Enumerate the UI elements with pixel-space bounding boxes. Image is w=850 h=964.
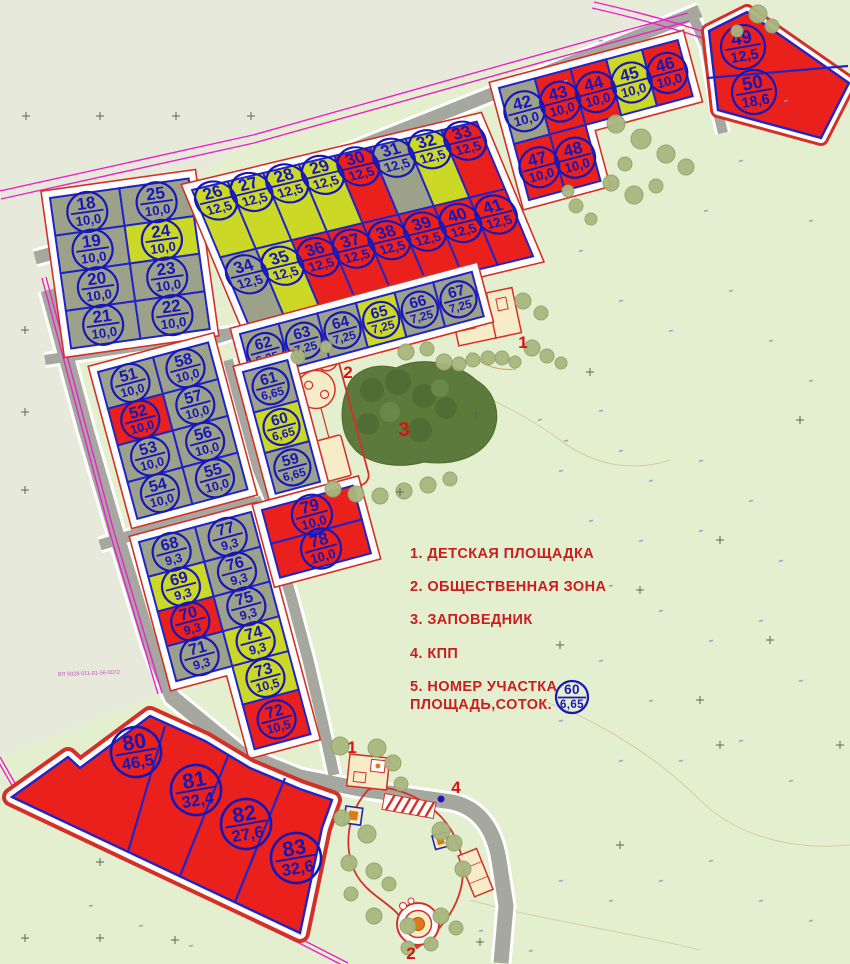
legend-item-plot-number-line2: ПЛОЩАДЬ,СОТОК. — [410, 696, 557, 714]
map-marker-2: 2 — [406, 944, 415, 963]
tree-icon — [495, 351, 509, 365]
tree-icon — [534, 306, 548, 320]
map-marker-3: 3 — [398, 419, 409, 441]
tree-icon — [348, 486, 364, 502]
tree-icon — [509, 356, 521, 368]
tree-icon — [344, 887, 358, 901]
tree-icon — [382, 877, 396, 891]
legend-item-playground: 1. ДЕТСКАЯ ПЛОЩАДКА — [410, 545, 594, 563]
tree-icon — [368, 739, 386, 757]
tree-icon — [455, 861, 471, 877]
tree-icon — [618, 157, 632, 171]
legend-sample-plot-badge: 60 6,65 — [550, 675, 594, 719]
tree-icon — [334, 810, 350, 826]
tree-icon — [555, 357, 567, 369]
tree-icon — [607, 115, 625, 133]
map-marker-2: 2 — [343, 363, 352, 382]
legend-sample-area: 6,65 — [560, 699, 584, 711]
tree-icon — [436, 354, 452, 370]
tree-icon — [398, 344, 414, 360]
tree-icon — [603, 175, 619, 191]
tree-icon — [765, 19, 779, 33]
tree-icon — [466, 353, 480, 367]
tree-icon — [585, 213, 597, 225]
tree-icon — [372, 488, 388, 504]
tree-icon — [366, 908, 382, 924]
tree-icon — [631, 129, 651, 149]
tree-icon — [443, 472, 457, 486]
tree-icon — [649, 179, 663, 193]
tree-icon — [515, 293, 531, 309]
tree-icon — [569, 199, 583, 213]
tree-icon — [449, 921, 463, 935]
tree-icon — [749, 5, 767, 23]
tree-icon — [433, 908, 449, 924]
legend-item-checkpoint: 4. КПП — [410, 645, 458, 663]
tree-icon — [420, 342, 434, 356]
legend-item-reserve: 3. ЗАПОВЕДНИК — [410, 611, 533, 629]
tree-icon — [481, 351, 495, 365]
tree-icon — [625, 186, 643, 204]
gate-building — [347, 754, 390, 790]
tree-icon — [325, 481, 341, 497]
tree-icon — [420, 477, 436, 493]
tree-icon — [320, 341, 332, 353]
site-plan-page: 1810,01910,02010,02110,02510,02410,02310… — [0, 0, 850, 964]
legend-item-plot-number-line1: 5. НОМЕР УЧАСТКА — [410, 678, 557, 696]
legend-sample-number: 60 — [564, 682, 580, 697]
map-marker-1: 1 — [518, 333, 527, 352]
legend-item-plot-number: 5. НОМЕР УЧАСТКА ПЛОЩАДЬ,СОТОК. — [410, 678, 557, 714]
legend-item-public-zone: 2. ОБЩЕСТВЕННАЯ ЗОНА — [410, 578, 606, 596]
map-marker-4: 4 — [451, 778, 461, 797]
gate-point — [438, 796, 445, 803]
tree-icon — [358, 825, 376, 843]
tree-icon — [291, 350, 305, 364]
tree-icon — [562, 185, 574, 197]
plot-number: 50 — [740, 70, 764, 94]
tree-icon — [540, 349, 554, 363]
tree-icon — [657, 145, 675, 163]
tree-icon — [452, 357, 466, 371]
tree-icon — [394, 777, 408, 791]
tree-icon — [424, 937, 438, 951]
tree-icon — [385, 755, 401, 771]
tree-icon — [366, 863, 382, 879]
tree-icon — [446, 835, 462, 851]
tree-icon — [432, 822, 450, 840]
tree-icon — [341, 855, 357, 871]
site-plan-map: 1810,01910,02010,02110,02510,02410,02310… — [0, 0, 850, 964]
tree-icon — [678, 159, 694, 175]
tree-icon — [731, 25, 743, 37]
tree-icon — [400, 918, 416, 934]
tree-icon — [396, 483, 412, 499]
map-marker-1: 1 — [347, 738, 356, 757]
